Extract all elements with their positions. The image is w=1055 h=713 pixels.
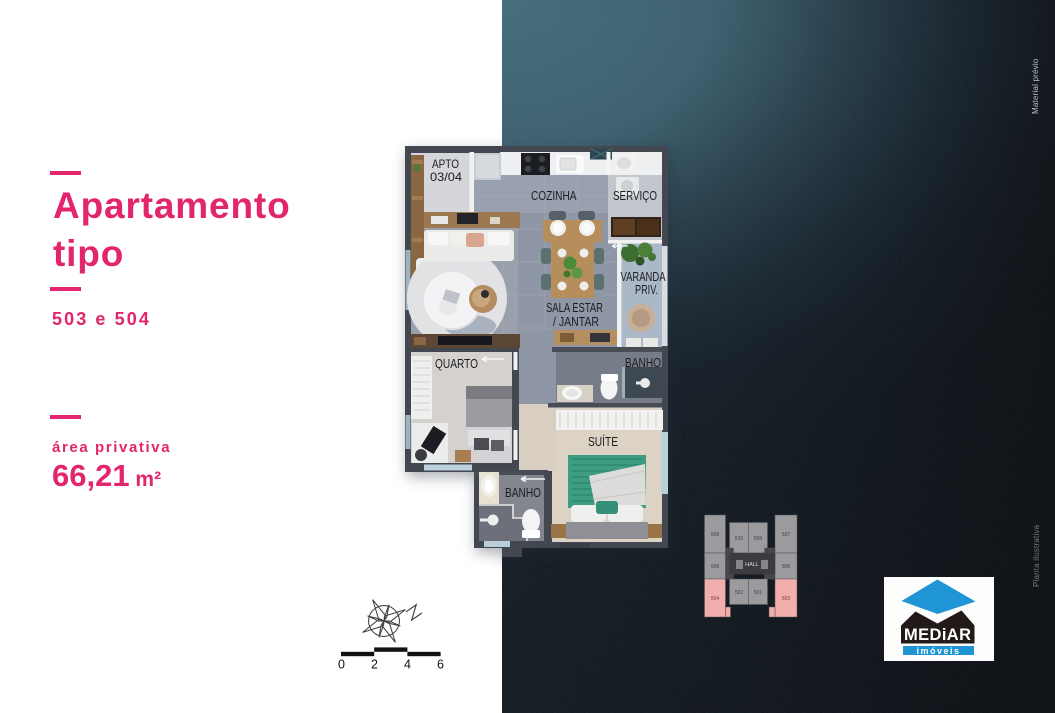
svg-text:4: 4 bbox=[404, 658, 411, 672]
svg-text:HALL: HALL bbox=[745, 562, 759, 568]
svg-text:APTO: APTO bbox=[432, 157, 459, 171]
svg-text:0: 0 bbox=[338, 658, 345, 672]
svg-text:SERVIÇO: SERVIÇO bbox=[613, 188, 657, 203]
svg-text:SUÍTE: SUÍTE bbox=[588, 434, 618, 449]
svg-text:BANHO: BANHO bbox=[505, 485, 541, 500]
svg-text:QUARTO: QUARTO bbox=[435, 356, 478, 371]
svg-text:509: 509 bbox=[754, 536, 763, 542]
svg-text:508: 508 bbox=[711, 532, 720, 538]
svg-text:6: 6 bbox=[437, 658, 444, 672]
svg-text:503: 503 bbox=[782, 596, 791, 602]
svg-text:506: 506 bbox=[711, 564, 720, 570]
svg-text:PRIV.: PRIV. bbox=[635, 282, 658, 297]
svg-text:505: 505 bbox=[782, 564, 791, 570]
svg-text:SALA ESTAR: SALA ESTAR bbox=[546, 300, 603, 315]
svg-text:03/04: 03/04 bbox=[430, 170, 462, 184]
svg-text:507: 507 bbox=[782, 532, 791, 538]
svg-text:501: 501 bbox=[754, 590, 763, 596]
svg-text:imóveis: imóveis bbox=[916, 646, 960, 656]
svg-text:MEDiAR: MEDiAR bbox=[904, 626, 971, 644]
svg-text:COZINHA: COZINHA bbox=[531, 188, 577, 203]
svg-text:/ JANTAR: / JANTAR bbox=[553, 314, 599, 329]
svg-text:504: 504 bbox=[711, 596, 720, 602]
svg-text:2: 2 bbox=[371, 658, 378, 672]
svg-text:502: 502 bbox=[735, 590, 744, 596]
svg-text:510: 510 bbox=[735, 536, 744, 542]
